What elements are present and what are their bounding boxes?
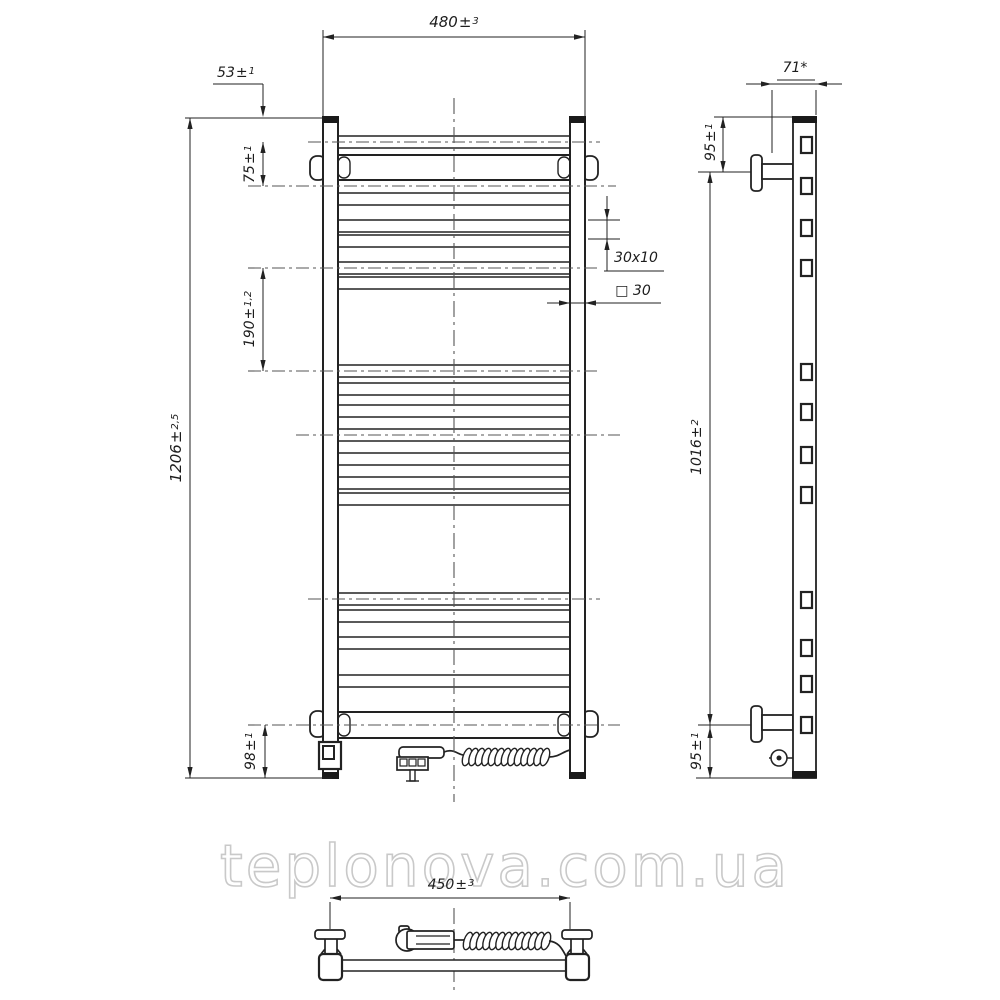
dim-overall-height-label: 1206±2,5 [167, 414, 185, 483]
dim-top-offset-label: 53±1 [217, 65, 255, 81]
dim-depth-label: 71* [783, 60, 808, 76]
side-view [751, 116, 817, 778]
dim-overall-width-label: 480±3 [429, 13, 479, 31]
cable-to-rail-front [549, 750, 570, 757]
dim-side-top-bracket-label: 95±1 [703, 123, 719, 161]
bottom-right-block [566, 954, 589, 980]
technical-drawing-towel-rail: teplonova.com.ua [0, 0, 1000, 1000]
side-wall-bracket-bottom [751, 706, 793, 742]
dim-bracket-width-label: 450±3 [428, 877, 475, 893]
bottom-bar [342, 960, 566, 971]
coil-cable-bottom [461, 931, 552, 951]
front-left-rail [323, 118, 338, 778]
drawing-linework [0, 0, 1000, 1000]
side-wall-bracket-top [751, 155, 793, 191]
dim-rail-profile-label: □ 30 [615, 283, 651, 299]
dim-side-bottom-bracket-label: 95±1 [689, 732, 705, 770]
dim-bottom-offset-label: 98±1 [243, 732, 259, 770]
dim-header-spacing-label: 75±1 [242, 145, 258, 183]
heating-element [319, 742, 341, 769]
front-right-rail [570, 118, 585, 778]
coil-cable-front [460, 747, 551, 767]
bottom-left-block [319, 954, 342, 980]
dim-group-spacing-label: 190±1,2 [242, 291, 258, 347]
dim-rung-profile-label: 30x10 [614, 250, 658, 266]
cable-to-block-bottom [549, 941, 566, 956]
cable-gland-icon [769, 750, 793, 766]
dim-bracket-spacing-label: 1016±2 [689, 419, 705, 475]
